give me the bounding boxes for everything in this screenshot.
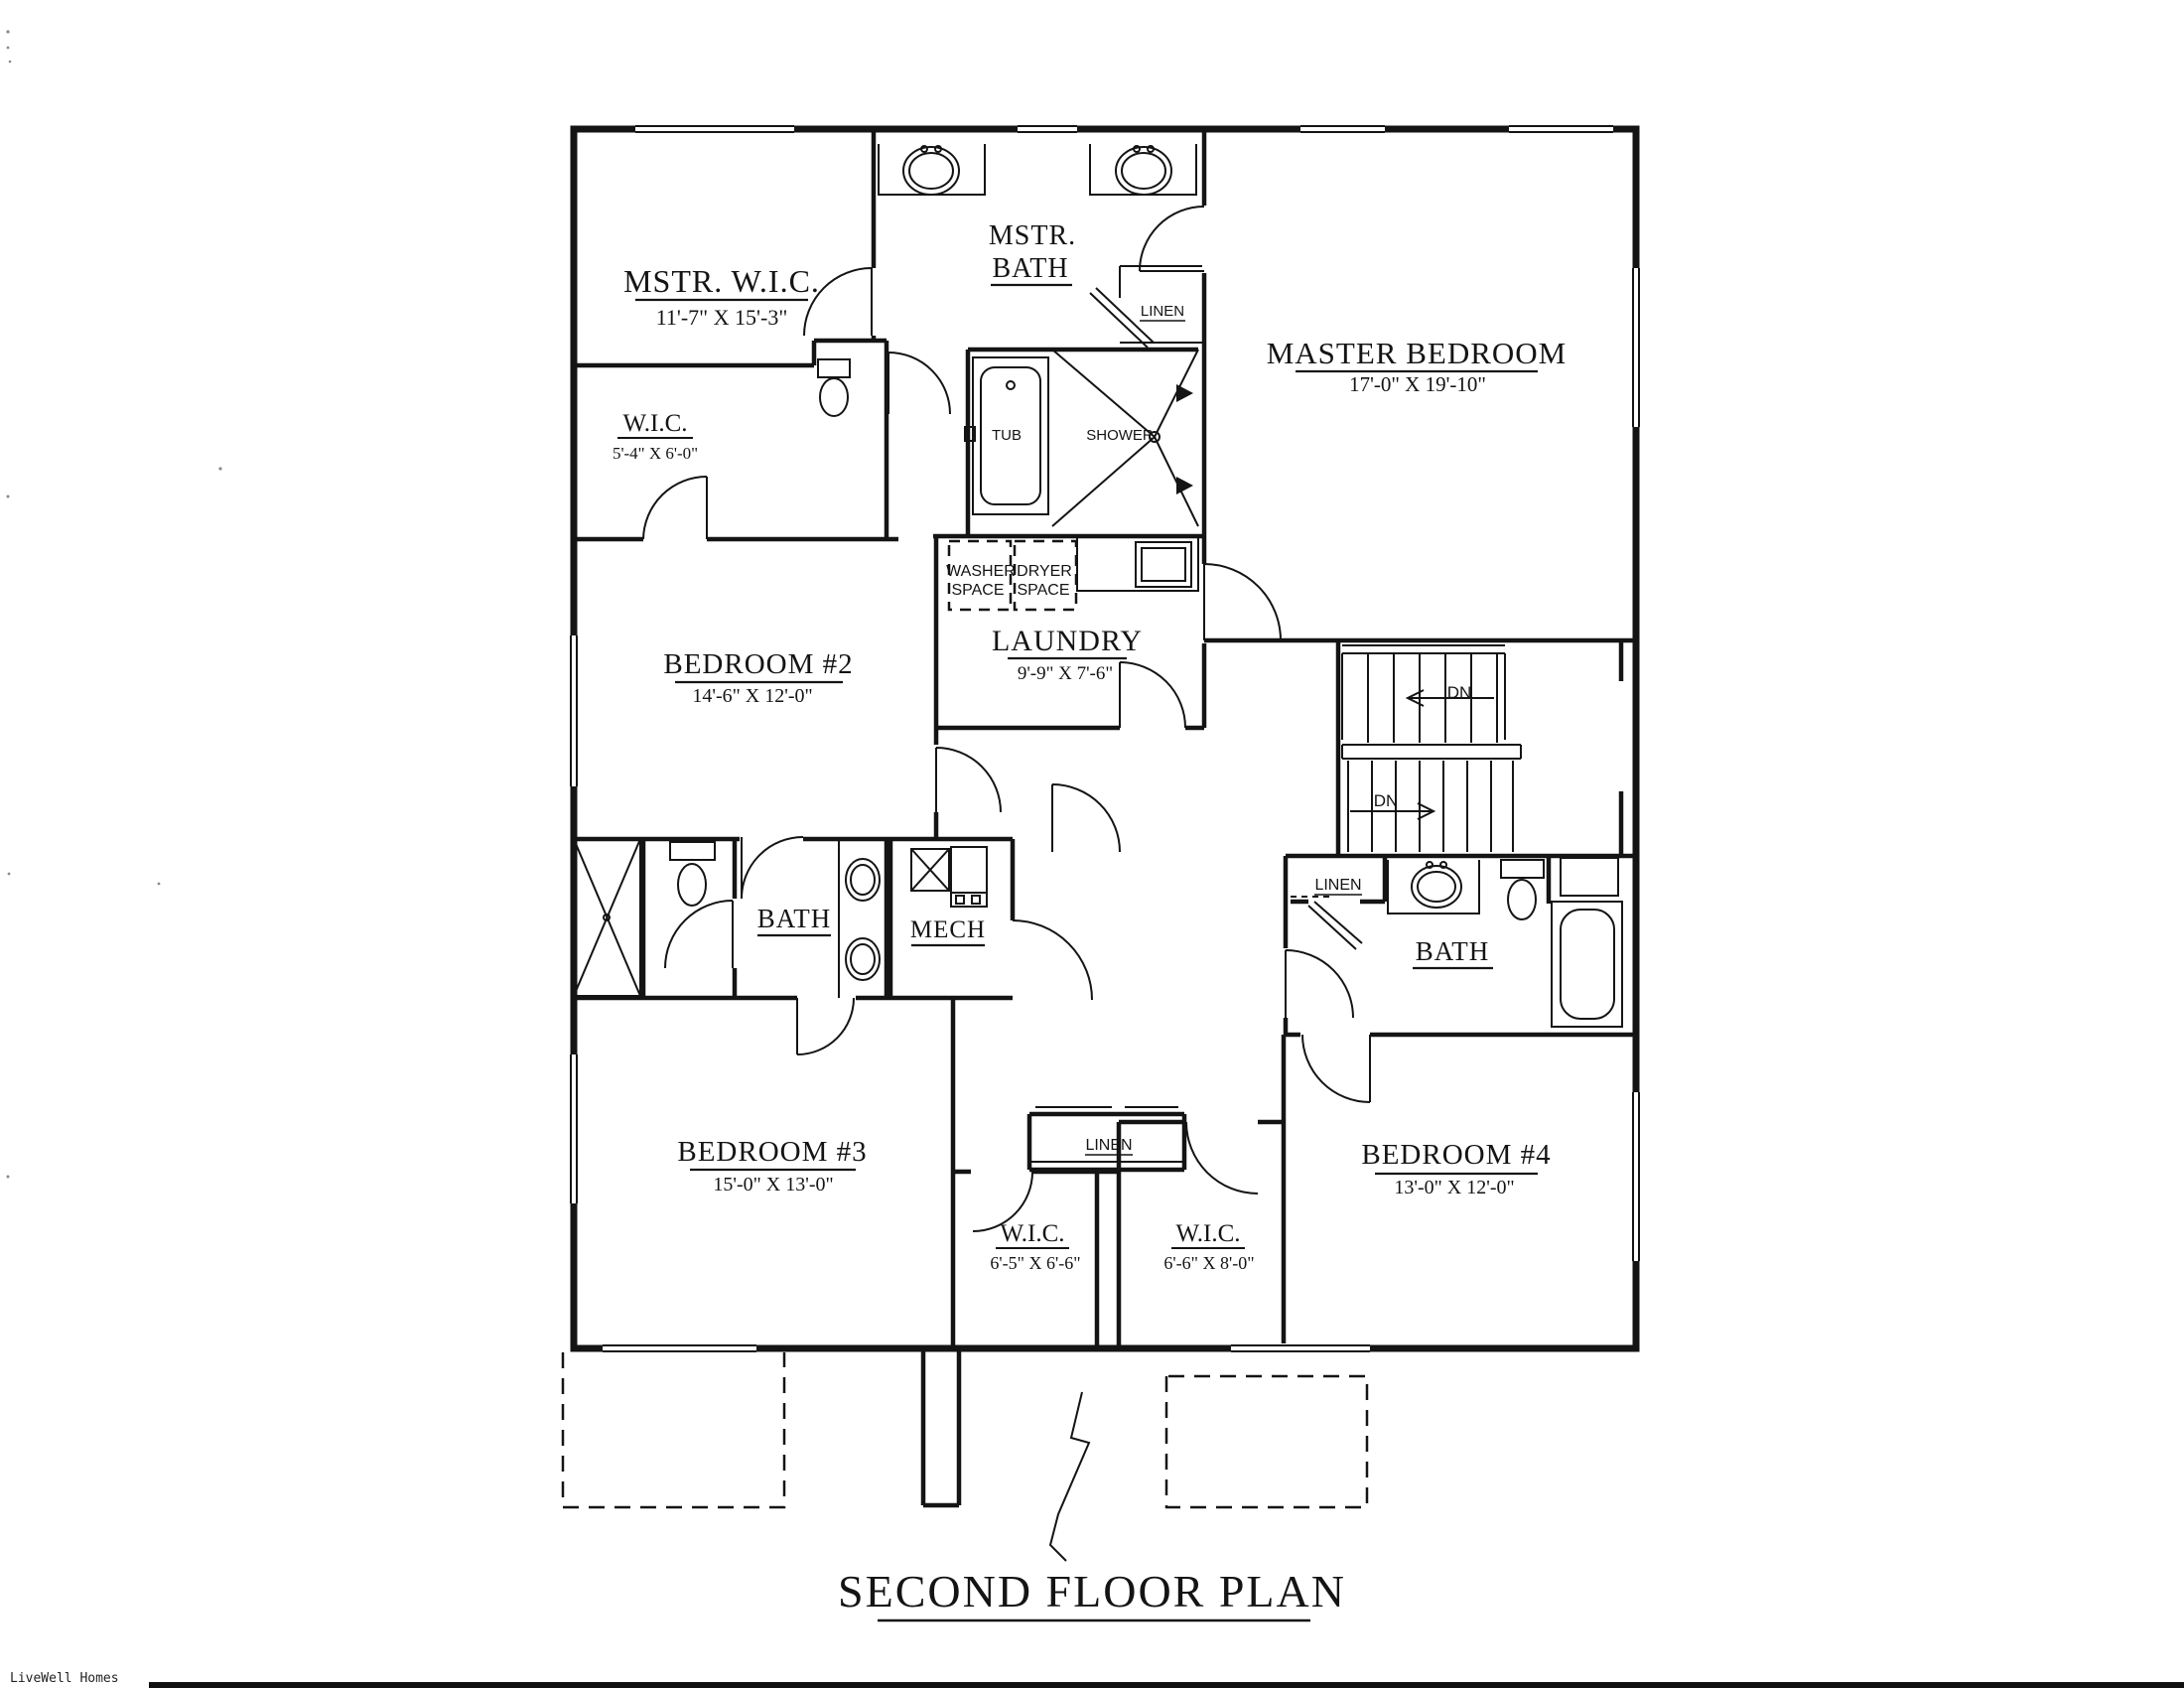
deck-outline-left <box>563 1352 784 1507</box>
section-leader <box>1050 1392 1089 1561</box>
closet-label-linen-hall: LINEN <box>1085 1137 1132 1154</box>
room-dims-bedroom4: 13'-0" X 12'-0" <box>1394 1177 1514 1198</box>
closet-label-linen-mstr: LINEN <box>1141 303 1184 320</box>
room-label-bedroom2: BEDROOM #2 <box>663 648 853 680</box>
door-mstr-bath-entry <box>1140 207 1204 271</box>
door-wic-small <box>643 477 707 539</box>
door-mech <box>1013 920 1092 1000</box>
room-dims-bedroom3: 15'-0" X 13'-0" <box>713 1174 833 1196</box>
room-label-bedroom4: BEDROOM #4 <box>1361 1139 1551 1171</box>
dryer-space-label-1: DRYER <box>1017 563 1072 580</box>
washer-space-label-2: SPACE <box>951 582 1004 599</box>
room-dims-master-bedroom: 17'-0" X 19'-10" <box>1349 372 1486 396</box>
room-label-laundry: LAUNDRY <box>992 625 1143 657</box>
room-dims-bedroom2: 14'-6" X 12'-0" <box>692 685 812 707</box>
deck-outline-right <box>1166 1376 1367 1507</box>
door-bedroom4 <box>1302 1035 1370 1102</box>
stair-dn-lower: DN <box>1374 791 1399 810</box>
room-label-mstr-wic: MSTR. W.I.C. <box>623 263 820 299</box>
fixture-label-tub: TUB <box>992 427 1022 444</box>
room-dims-wic-small: 5'-4" X 6'-0" <box>613 444 698 463</box>
washer-space-label-1: WASHER <box>946 563 1016 580</box>
room-label-wic-small: W.I.C. <box>622 410 687 437</box>
door-master-bedroom <box>1204 564 1281 640</box>
room-label-mstr-bath-1: MSTR. <box>989 220 1076 251</box>
door-swings <box>643 207 1370 1231</box>
brand-text: LiveWell Homes <box>10 1671 119 1686</box>
floor-plan-drawing: MSTR. W.I.C. 11'-7" X 15'-3" W.I.C. 5'-4… <box>0 0 2184 1688</box>
room-label-bath-right: BATH <box>1416 936 1490 966</box>
stairs <box>1342 645 1521 852</box>
door-bath-right <box>1286 950 1353 1018</box>
room-label-mstr-bath-2: BATH <box>992 253 1068 284</box>
labels: MSTR. W.I.C. 11'-7" X 15'-3" W.I.C. 5'-4… <box>613 220 1567 1620</box>
door-wic-b4 <box>1186 1122 1258 1194</box>
door-bedroom2 <box>936 748 1001 812</box>
fixture-label-shower: SHOWER <box>1086 427 1154 444</box>
door-bedroom3 <box>797 998 854 1055</box>
dashed-outlines <box>563 541 1367 1507</box>
room-label-bath-middle: BATH <box>757 904 832 933</box>
dryer-space-label-2: SPACE <box>1017 582 1069 599</box>
room-label-bedroom3: BEDROOM #3 <box>677 1136 867 1168</box>
room-dims-wic-b4: 6'-6" X 8'-0" <box>1163 1253 1254 1273</box>
scan-specks <box>6 30 221 1178</box>
room-dims-laundry: 9'-9" X 7'-6" <box>1018 663 1113 684</box>
floor-plan-page: MSTR. W.I.C. 11'-7" X 15'-3" W.I.C. 5'-4… <box>0 0 2184 1688</box>
room-label-master-bedroom: MASTER BEDROOM <box>1267 336 1568 370</box>
door-mstr-bath-hall <box>888 352 950 414</box>
room-dims-wic-b3: 6'-5" X 6'-6" <box>990 1253 1080 1273</box>
room-label-wic-b3: W.I.C. <box>1000 1220 1064 1247</box>
stair-dn-upper: DN <box>1447 683 1472 702</box>
plan-title: SECOND FLOOR PLAN <box>838 1566 1346 1617</box>
door-bath-middle <box>742 837 803 899</box>
room-label-wic-b4: W.I.C. <box>1175 1220 1240 1247</box>
door-hall <box>1052 784 1120 852</box>
page-edge-bar <box>149 1682 2184 1688</box>
closet-label-linen-right: LINEN <box>1314 877 1361 894</box>
room-label-mech: MECH <box>910 916 986 943</box>
door-linen-right <box>1308 902 1362 949</box>
door-toilet-room <box>665 901 733 968</box>
door-laundry <box>1120 662 1185 728</box>
room-dims-mstr-wic: 11'-7" X 15'-3" <box>656 305 788 330</box>
